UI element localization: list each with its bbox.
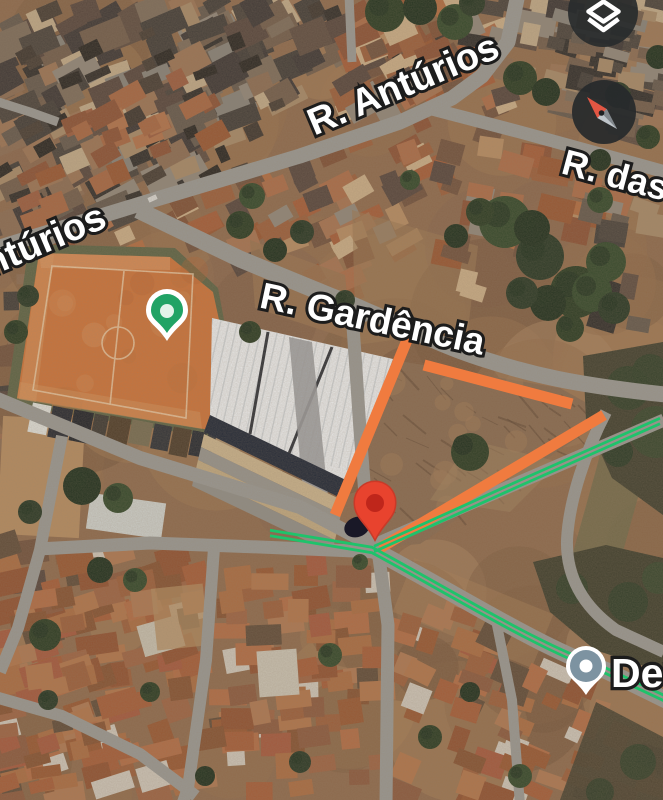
svg-text:Depósito: Depósito <box>611 650 663 696</box>
